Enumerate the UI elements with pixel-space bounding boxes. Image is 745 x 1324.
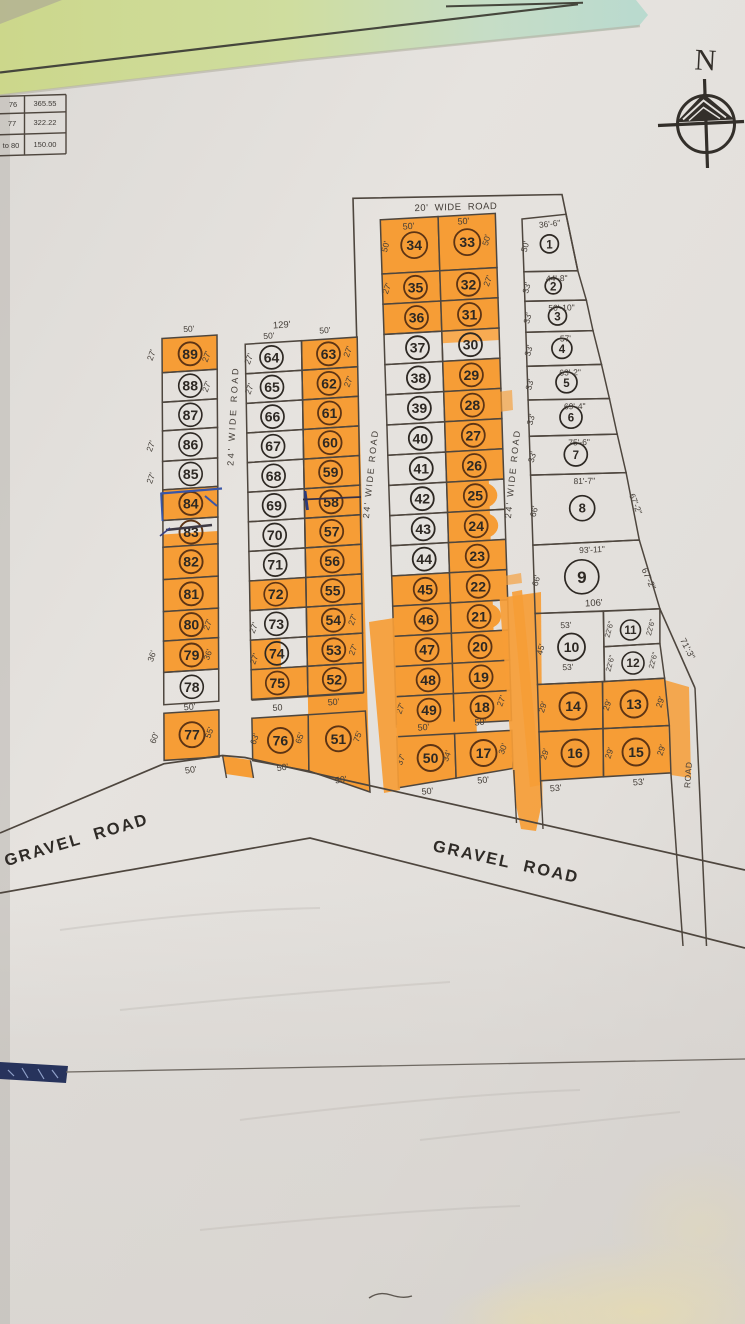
svg-text:50'-10": 50'-10" [548,302,575,313]
svg-text:20: 20 [472,639,488,655]
svg-text:23: 23 [469,548,485,564]
svg-text:85: 85 [183,466,199,482]
svg-text:57': 57' [560,333,572,343]
svg-text:7: 7 [573,450,579,462]
svg-text:77: 77 [8,119,16,128]
svg-text:35: 35 [408,279,424,295]
svg-text:24: 24 [468,518,484,534]
svg-text:73: 73 [269,616,285,632]
svg-text:28: 28 [465,397,481,413]
svg-text:13: 13 [626,696,642,712]
svg-text:41: 41 [414,461,430,477]
svg-text:46: 46 [418,612,434,628]
svg-text:50': 50' [184,764,197,776]
svg-text:18: 18 [474,699,490,715]
svg-text:322.22: 322.22 [34,118,57,127]
svg-text:106': 106' [585,598,603,610]
svg-text:ROAD: ROAD [682,761,694,788]
svg-text:50: 50 [423,750,439,766]
svg-text:14: 14 [565,698,581,714]
svg-text:50: 50 [272,702,283,713]
svg-text:47: 47 [419,642,435,658]
svg-text:88: 88 [182,378,198,394]
svg-text:12: 12 [626,656,640,670]
svg-text:33: 33 [459,234,475,250]
svg-text:42: 42 [415,491,431,507]
svg-text:87: 87 [183,407,199,423]
svg-text:15: 15 [628,744,644,760]
svg-text:16: 16 [567,745,583,761]
svg-text:50': 50' [417,722,430,733]
svg-text:to 80: to 80 [3,141,20,150]
svg-text:1: 1 [546,239,553,251]
svg-text:50': 50' [474,717,487,728]
svg-text:50': 50' [402,221,415,232]
svg-text:62: 62 [321,375,337,391]
svg-text:129': 129' [273,319,292,331]
svg-text:44: 44 [416,551,432,567]
svg-text:50': 50' [183,323,195,334]
svg-text:50': 50' [457,216,470,227]
svg-text:36: 36 [409,310,425,326]
svg-text:N: N [694,43,717,77]
svg-text:58: 58 [323,494,339,510]
svg-text:50': 50' [319,325,331,336]
svg-text:76: 76 [9,100,17,109]
svg-text:50': 50' [183,701,196,712]
svg-text:29: 29 [464,367,480,383]
svg-text:53: 53 [326,642,342,658]
svg-text:86: 86 [183,436,199,452]
svg-text:32: 32 [461,276,477,292]
svg-text:5: 5 [563,378,570,390]
svg-text:52: 52 [327,671,343,687]
svg-text:45: 45 [417,581,433,597]
svg-text:75'-6": 75'-6" [568,437,590,448]
svg-text:20' WIDE ROAD: 20' WIDE ROAD [414,201,497,214]
svg-text:75: 75 [270,675,286,691]
svg-text:50': 50' [263,330,275,341]
svg-text:50': 50' [421,786,434,797]
svg-text:66: 66 [265,409,281,425]
svg-text:4: 4 [559,344,566,356]
svg-text:55: 55 [325,583,341,599]
svg-text:365.55: 365.55 [34,99,57,108]
svg-text:30: 30 [463,337,479,353]
svg-text:74: 74 [269,645,285,661]
svg-text:76: 76 [273,732,289,748]
svg-text:53': 53' [560,620,572,631]
svg-text:69: 69 [266,497,282,513]
svg-text:8: 8 [579,501,586,516]
svg-text:9: 9 [577,568,586,587]
svg-text:79: 79 [184,647,200,663]
svg-text:3: 3 [554,312,560,324]
svg-text:71: 71 [267,557,283,573]
svg-text:31: 31 [462,307,478,323]
svg-text:150.00: 150.00 [34,140,57,149]
svg-text:22: 22 [470,578,486,594]
svg-text:21: 21 [471,609,487,625]
svg-text:53': 53' [562,662,574,673]
svg-text:40: 40 [413,430,429,446]
svg-text:68: 68 [266,468,282,484]
svg-text:82: 82 [183,554,199,570]
svg-text:50': 50' [327,696,340,707]
svg-text:34: 34 [406,237,422,253]
svg-text:53': 53' [549,782,562,793]
svg-text:84: 84 [183,495,199,511]
svg-text:6: 6 [568,413,574,425]
svg-text:57: 57 [324,523,340,539]
svg-text:60: 60 [322,435,338,451]
svg-text:26: 26 [467,458,483,474]
svg-text:44'-8": 44'-8" [546,273,568,283]
svg-text:19: 19 [473,669,489,685]
svg-text:38: 38 [411,370,427,386]
svg-text:63: 63 [321,346,337,362]
svg-text:70: 70 [267,527,283,543]
svg-text:72: 72 [268,586,284,602]
svg-text:10: 10 [564,639,580,655]
svg-text:48: 48 [420,672,436,688]
svg-text:54: 54 [326,612,342,628]
svg-text:39: 39 [412,400,428,416]
svg-text:50': 50' [477,774,490,785]
svg-text:69'-4": 69'-4" [564,401,586,411]
svg-text:51: 51 [331,731,347,747]
svg-text:49: 49 [421,702,437,718]
svg-text:56: 56 [324,553,340,569]
svg-text:67: 67 [265,438,281,454]
svg-text:80: 80 [184,617,200,633]
svg-text:43: 43 [415,521,431,537]
svg-text:25: 25 [468,488,484,504]
svg-text:17: 17 [476,745,492,761]
svg-text:37: 37 [410,340,426,356]
svg-text:27: 27 [466,427,482,443]
svg-text:81'-7": 81'-7" [573,476,595,487]
svg-text:59: 59 [323,464,339,480]
svg-text:78: 78 [184,679,200,695]
svg-text:93'-11": 93'-11" [579,544,605,555]
svg-text:63'-2": 63'-2" [559,367,581,378]
svg-text:64: 64 [264,349,280,365]
svg-text:77: 77 [184,727,200,743]
svg-text:61: 61 [322,405,338,421]
svg-text:65: 65 [264,379,280,395]
svg-text:11: 11 [624,625,637,637]
svg-text:81: 81 [184,586,200,602]
svg-text:89: 89 [182,346,198,362]
svg-text:53': 53' [632,776,645,787]
